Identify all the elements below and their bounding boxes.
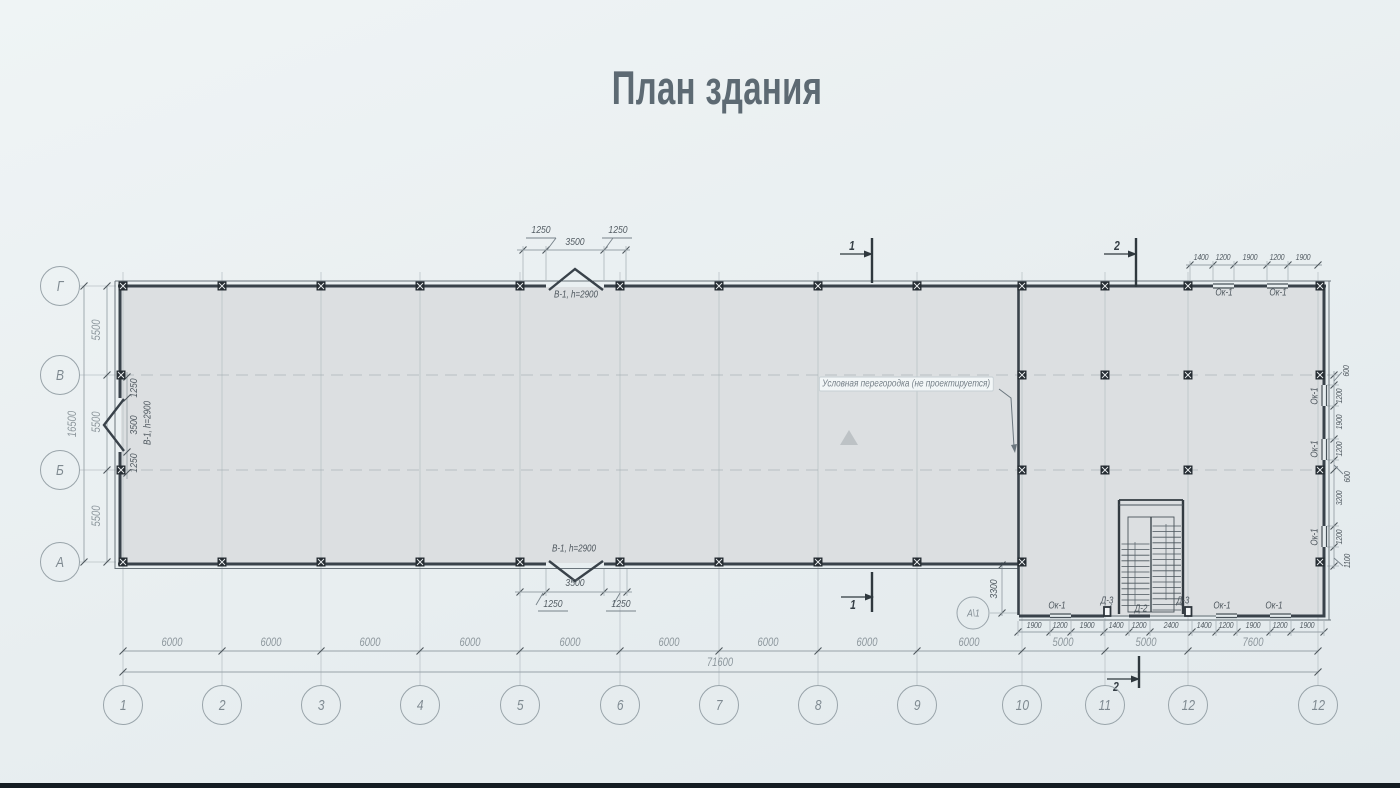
dim-left-span-0: 5500	[91, 320, 103, 341]
dim-gate-bottom-1: 1250	[543, 598, 562, 610]
axis-circle-bottom-5: 5	[500, 685, 540, 725]
dim-annex-opening-6: 1400	[1197, 620, 1212, 630]
axis-circle-bottom-1: 1	[103, 685, 143, 725]
dim-right-side-5: 3200	[1334, 491, 1344, 506]
dim-top-right-2: 1900	[1243, 252, 1258, 262]
dim-bottom-span-5: 6000	[659, 637, 680, 649]
axis-circle-bottom-6: 6	[600, 685, 640, 725]
dim-bottom-span-8: 6000	[959, 637, 980, 649]
gate-top-tag: В-1, h=2900	[554, 290, 598, 301]
axis-circle-left-Б-label: Б	[56, 462, 64, 479]
dim-gate-top-0: 1250	[531, 224, 550, 236]
dim-bottom-span-11: 7600	[1243, 637, 1264, 649]
dim-right-side-2: 1900	[1334, 415, 1344, 430]
dim-annex-opening-10: 1900	[1300, 620, 1315, 630]
bottom-wall-tag-3: Д-3	[1177, 596, 1190, 607]
dim-top-right-0: 1400	[1194, 252, 1209, 262]
axis-circle-left-А-label: А	[56, 554, 64, 571]
dim-bottom-span-9: 5000	[1053, 637, 1074, 649]
dim-annex-opening-4: 1200	[1132, 620, 1147, 630]
dim-annex-offset: 3300	[988, 579, 1000, 598]
dim-bottom-span-10: 5000	[1136, 637, 1157, 649]
axis-circle-bottom-11-label: 11	[1099, 697, 1111, 714]
axis-circle-bottom-4-label: 4	[417, 697, 424, 714]
dim-bottom-span-2: 6000	[360, 637, 381, 649]
dim-right-side-7: 1100	[1342, 554, 1352, 568]
bottom-wall-tag-1: Д-3	[1101, 596, 1114, 607]
dim-top-right-1: 1200	[1216, 252, 1231, 262]
right-window-tag-1: Ок-1	[1310, 440, 1321, 457]
dim-left-span-1: 5500	[91, 412, 103, 433]
axis-circle-left-Б: Б	[40, 450, 80, 490]
floor-plan-canvas: 6000600060006000600060006000600060005000…	[0, 0, 1400, 788]
axis-circle-bottom-1-label: 1	[120, 697, 127, 714]
dim-annex-opening-7: 1200	[1219, 620, 1234, 630]
bottom-wall-tag-5: Ок-1	[1265, 601, 1282, 612]
dim-annex-opening-1: 1200	[1053, 620, 1068, 630]
axis-circle-bottom-4: 4	[400, 685, 440, 725]
axis-circle-bottom-3: 3	[301, 685, 341, 725]
axis-circle-bottom-9-label: 9	[914, 697, 921, 714]
dim-right-side-3: 1200	[1334, 442, 1344, 457]
bottom-wall-tag-0: Ок-1	[1048, 601, 1065, 612]
dim-right-side-6: 1200	[1334, 530, 1344, 545]
axis-circle-bottom-10: 10	[1002, 685, 1042, 725]
bottom-wall-tag-2: Д-2	[1135, 604, 1148, 615]
axis-circle-bottom-12-label: 12	[1181, 697, 1194, 714]
dim-annex-opening-0: 1900	[1027, 620, 1042, 630]
dim-top-right-4: 1900	[1296, 252, 1311, 262]
dim-left-total: 16500	[67, 411, 79, 437]
dim-bottom-span-4: 6000	[560, 637, 581, 649]
watermark-triangle	[840, 430, 858, 445]
dim-bottom-span-0: 6000	[162, 637, 183, 649]
axis-circle-bottom-8: 8	[798, 685, 838, 725]
gate-bottom-tag: В-1, h=2900	[552, 544, 596, 555]
axis-circle-bottom-13-label: 12	[1311, 697, 1324, 714]
dim-right-side-0: 600	[1341, 365, 1351, 376]
right-window-tag-0: Ок-1	[1310, 387, 1321, 404]
dim-bottom-span-7: 6000	[857, 637, 878, 649]
dim-left-span-2: 5500	[91, 506, 103, 527]
axis-circle-bottom-2-label: 2	[219, 697, 226, 714]
axis-circle-bottom-8-label: 8	[815, 697, 822, 714]
bottom-bar	[0, 783, 1400, 788]
axis-circle-bottom-10-label: 10	[1015, 697, 1028, 714]
dim-gate-left-2: 1250	[128, 453, 140, 472]
gate-left-tag: В-1, h=2900	[143, 401, 154, 445]
axis-circle-left-В-label: В	[56, 367, 64, 384]
axis-circle-bottom-9: 9	[897, 685, 937, 725]
top-window-tag-0: Ок-1	[1215, 288, 1232, 299]
top-window-tag-1: Ок-1	[1269, 288, 1286, 299]
axis-circle-bottom-2: 2	[202, 685, 242, 725]
axis-circle-special-label: А\1	[967, 607, 980, 619]
dim-bottom-span-6: 6000	[758, 637, 779, 649]
axis-circle-left-А: А	[40, 542, 80, 582]
dim-bottom-span-1: 6000	[261, 637, 282, 649]
page-title: План здания	[612, 60, 823, 115]
dim-gate-bottom-0: 3500	[565, 577, 584, 589]
axis-circle-left-В: В	[40, 355, 80, 395]
axis-circle-bottom-11: 11	[1085, 685, 1125, 725]
axis-circle-bottom-7: 7	[699, 685, 739, 725]
section-mark-1-top-label: 1	[849, 239, 855, 253]
dim-annex-opening-2: 1900	[1080, 620, 1095, 630]
dim-gate-bottom-2: 1250	[611, 598, 630, 610]
axis-circle-bottom-3-label: 3	[318, 697, 325, 714]
dim-right-side-1: 1200	[1334, 389, 1344, 404]
axis-circle-bottom-6-label: 6	[617, 697, 624, 714]
axis-circle-bottom-5-label: 5	[517, 697, 524, 714]
bottom-wall-tag-4: Ок-1	[1213, 601, 1230, 612]
dim-annex-opening-9: 1200	[1273, 620, 1288, 630]
dim-annex-opening-8: 1900	[1246, 620, 1261, 630]
dim-top-right-3: 1200	[1270, 252, 1285, 262]
section-mark-1-bottom-label: 1	[850, 598, 856, 612]
right-window-tag-2: Ок-1	[1310, 528, 1321, 545]
section-mark-2-top-label: 2	[1114, 239, 1120, 253]
dim-right-side-4: 600	[1342, 471, 1352, 482]
dim-annex-opening-5: 2400	[1164, 620, 1179, 630]
axis-circle-bottom-12: 12	[1168, 685, 1208, 725]
plan-labels-layer: 6000600060006000600060006000600060005000…	[0, 0, 1400, 788]
dim-gate-left-0: 1250	[128, 378, 140, 397]
axis-circle-bottom-13: 12	[1298, 685, 1338, 725]
dim-gate-top-2: 1250	[608, 224, 627, 236]
axis-circle-left-Г: Г	[40, 266, 80, 306]
dim-gate-left-1: 3500	[128, 415, 140, 434]
dim-annex-opening-3: 1400	[1109, 620, 1124, 630]
axis-circle-special: А\1	[957, 597, 990, 630]
dim-bottom-total: 71600	[707, 657, 733, 669]
dim-bottom-span-3: 6000	[460, 637, 481, 649]
axis-circle-bottom-7-label: 7	[716, 697, 723, 714]
dim-gate-top-1: 3500	[565, 236, 584, 248]
axis-circle-left-Г-label: Г	[57, 278, 64, 295]
partition-note: Условная перегородка (не проектируется)	[819, 377, 993, 392]
